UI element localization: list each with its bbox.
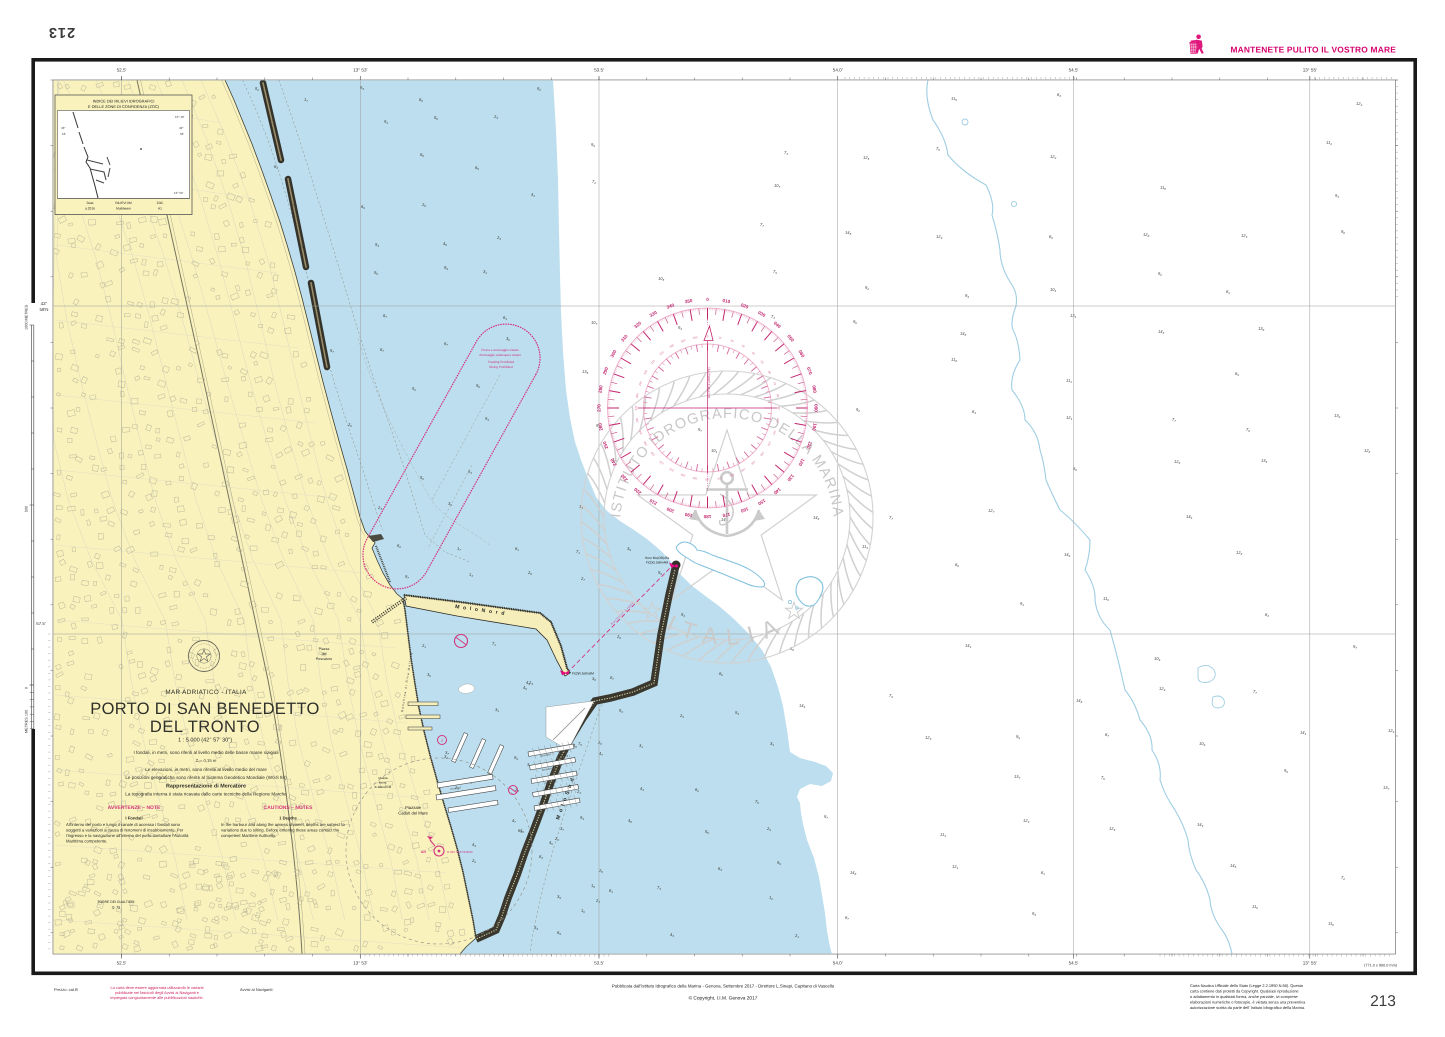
svg-text:Carta Nautica Ufficiale dello: Carta Nautica Ufficiale dello Stato (Leg… (1190, 983, 1304, 988)
svg-text:Rappresentazione di Mercatore: Rappresentazione di Mercatore (166, 784, 246, 790)
svg-text:All'interno del porto e lungo: All'interno del porto e lungo il canale … (66, 822, 181, 827)
svg-text:Multibeam: Multibeam (116, 207, 131, 211)
svg-text:impiegata congiuntamente alle: impiegata congiuntamente alle pubblicazi… (110, 995, 203, 1000)
svg-text:ZOC: ZOC (157, 201, 164, 205)
svg-text:variations due to silting. Bef: variations due to silting. Before enteri… (221, 828, 340, 833)
svg-text:Mons.: Mons. (379, 781, 387, 785)
svg-text:Pescatore: Pescatore (316, 657, 332, 661)
svg-text:270: 270 (597, 404, 602, 412)
svg-text:13° 48': 13° 48' (175, 115, 185, 119)
svg-text:Fl(2)R.5s8m3M: Fl(2)R.5s8m3M (572, 672, 594, 676)
svg-text:52.5': 52.5' (117, 961, 127, 966)
svg-text:© Copyright, I.I.M. Genova 201: © Copyright, I.I.M. Genova 2017 (689, 996, 758, 1002)
svg-text:1 Depths: 1 Depths (279, 816, 297, 821)
svg-text:53.5': 53.5' (594, 68, 604, 73)
svg-text:Prezzo: cat.B: Prezzo: cat.B (54, 987, 78, 992)
svg-text:54.5': 54.5' (1069, 68, 1079, 73)
svg-text:R.332.7/347/442kW: R.332.7/347/442kW (447, 850, 473, 854)
svg-text:180: 180 (703, 514, 711, 519)
svg-text:F. Bianchetti: F. Bianchetti (375, 785, 392, 789)
svg-text:Dm 3°30' E (2015) (7'E): Dm 3°30' E (2015) (7'E) (707, 367, 711, 398)
svg-text:13° 55': 13° 55' (1303, 68, 1317, 73)
svg-text:PORTO DI SAN BENEDETTO: PORTO DI SAN BENEDETTO (90, 700, 319, 718)
svg-text:0: 0 (25, 687, 29, 689)
svg-text:53.5': 53.5' (594, 961, 604, 966)
svg-text:autorizzazione scritta da part: autorizzazione scritta da parte dell' Is… (1190, 1005, 1305, 1010)
svg-text:58'N: 58'N (40, 307, 49, 312)
svg-text:13° 53': 13° 53' (353, 961, 367, 966)
svg-text:E DELLE ZONE DI CONFIDENZA (ZO: E DELLE ZONE DI CONFIDENZA (ZOC) (88, 104, 160, 109)
svg-text:Marittima competente.: Marittima competente. (66, 839, 107, 844)
svg-text:42°: 42° (41, 301, 48, 306)
svg-text:57.5': 57.5' (36, 621, 46, 626)
svg-text:Pesca e ancoraggio vietato: Pesca e ancoraggio vietato (481, 348, 519, 352)
svg-text:A1: A1 (158, 207, 162, 211)
svg-text:Piazza: Piazza (378, 776, 387, 780)
svg-text:(771.0 x 900.0 mm): (771.0 x 900.0 mm) (1364, 964, 1398, 968)
svg-text:Diving Prohibited: Diving Prohibited (489, 365, 513, 369)
svg-text:54.5': 54.5' (1069, 961, 1079, 966)
svg-text:Ancoraggio subacqueo vietato: Ancoraggio subacqueo vietato (479, 353, 521, 357)
svg-text:TORRE DEI GUALTIERI: TORRE DEI GUALTIERI (98, 900, 135, 904)
svg-text:0: 0 (706, 297, 709, 302)
svg-text:42°: 42° (179, 126, 184, 130)
svg-text:Data: Data (87, 201, 94, 205)
svg-text:elaborazioni numeriche o fotoc: elaborazioni numeriche o fotocopie, è vi… (1190, 1000, 1306, 1005)
svg-text:carta contiene dati protetti d: carta contiene dati protetti da Copyrigh… (1190, 989, 1299, 994)
svg-text:13° 53': 13° 53' (353, 68, 367, 73)
svg-text:16': 16' (62, 132, 66, 136)
svg-text:90: 90 (777, 406, 781, 410)
svg-text:Piazza: Piazza (319, 647, 330, 651)
svg-text:a.2016: a.2016 (85, 207, 95, 211)
svg-text:500: 500 (25, 506, 29, 512)
svg-text:Caduti del Mare: Caduti del Mare (398, 811, 428, 816)
svg-text:In the harbour and along the a: In the harbour and along the access chan… (221, 822, 346, 827)
svg-text:RILIEVI IIM: RILIEVI IIM (115, 201, 132, 205)
svg-text:o adattamento in qualsiasi for: o adattamento in qualsiasi forma, anche … (1190, 994, 1298, 999)
svg-text:270: 270 (634, 405, 638, 410)
svg-text:13° 55': 13° 55' (1303, 961, 1317, 966)
svg-text:AR: AR (421, 850, 427, 854)
svg-text:Q. T9: Q. T9 (112, 906, 121, 910)
svg-text:1 : 5 000 (42° 57' 30"): 1 : 5 000 (42° 57' 30") (178, 737, 232, 744)
svg-text:La topografia interna è stata: La topografia interna è stata ricavata d… (125, 792, 287, 797)
svg-text:090: 090 (814, 404, 819, 412)
svg-text:Le elevazioni, in metri, sono: Le elevazioni, in metri, sono riferite a… (145, 767, 267, 772)
svg-text:13° 56': 13° 56' (174, 191, 184, 195)
svg-text:54.0': 54.0' (833, 961, 843, 966)
svg-text:INDICE DEI RILIEVI IDROGRAFICI: INDICE DEI RILIEVI IDROGRAFICI (93, 99, 155, 104)
svg-text:l'ingresso e la navigazione al: l'ingresso e la navigazione all'interno … (66, 833, 189, 838)
svg-text:Le posizioni geografiche sono: Le posizioni geografiche sono riferite a… (125, 775, 287, 780)
svg-text:AVVERTENZE – NOTE: AVVERTENZE – NOTE (108, 805, 161, 811)
svg-text:Fl(2)G.5s8m4M: Fl(2)G.5s8m4M (646, 561, 668, 565)
svg-text:52.5': 52.5' (117, 68, 127, 73)
svg-text:MAR ADRIATICO - ITALIA: MAR ADRIATICO - ITALIA (165, 689, 247, 696)
svg-text:METRES 100: METRES 100 (25, 710, 29, 733)
svg-text:I fondali, in metri, sono rife: I fondali, in metri, sono riferiti al li… (133, 750, 278, 755)
svg-text:I Fondali: I Fondali (125, 816, 142, 821)
svg-text:43°: 43° (61, 126, 66, 130)
svg-text:MANTENETE PULITO IL VOSTRO MAR: MANTENETE PULITO IL VOSTRO MARE (1231, 45, 1397, 55)
svg-text:213: 213 (48, 24, 75, 40)
svg-text:Trawling Prohibited: Trawling Prohibited (488, 360, 515, 364)
svg-text:Avvisi ai Naviganti:: Avvisi ai Naviganti: (240, 987, 274, 992)
svg-text:Piazzale: Piazzale (405, 805, 421, 810)
svg-text:competent Maritime Authority.: competent Maritime Authority. (221, 833, 276, 838)
svg-text:213: 213 (1370, 993, 1396, 1010)
svg-text:soggetti a variazioni a causa: soggetti a variazioni a causa di fenomen… (66, 828, 184, 833)
svg-text:56': 56' (180, 132, 184, 136)
svg-text:CAUTIONS – NOTES: CAUTIONS – NOTES (264, 805, 314, 811)
svg-text:DEL TRONTO: DEL TRONTO (150, 718, 260, 736)
svg-text:Z₀= 0,15 m: Z₀= 0,15 m (196, 758, 217, 763)
svg-text:Pubblicata dall'Istituto Idrog: Pubblicata dall'Istituto Idrografico del… (612, 984, 835, 989)
svg-text:Horn Mo(OR)45s: Horn Mo(OR)45s (645, 556, 670, 560)
svg-text:1000 METRES: 1000 METRES (25, 304, 29, 330)
svg-text:del: del (322, 652, 327, 656)
svg-text:54.0': 54.0' (833, 68, 843, 73)
